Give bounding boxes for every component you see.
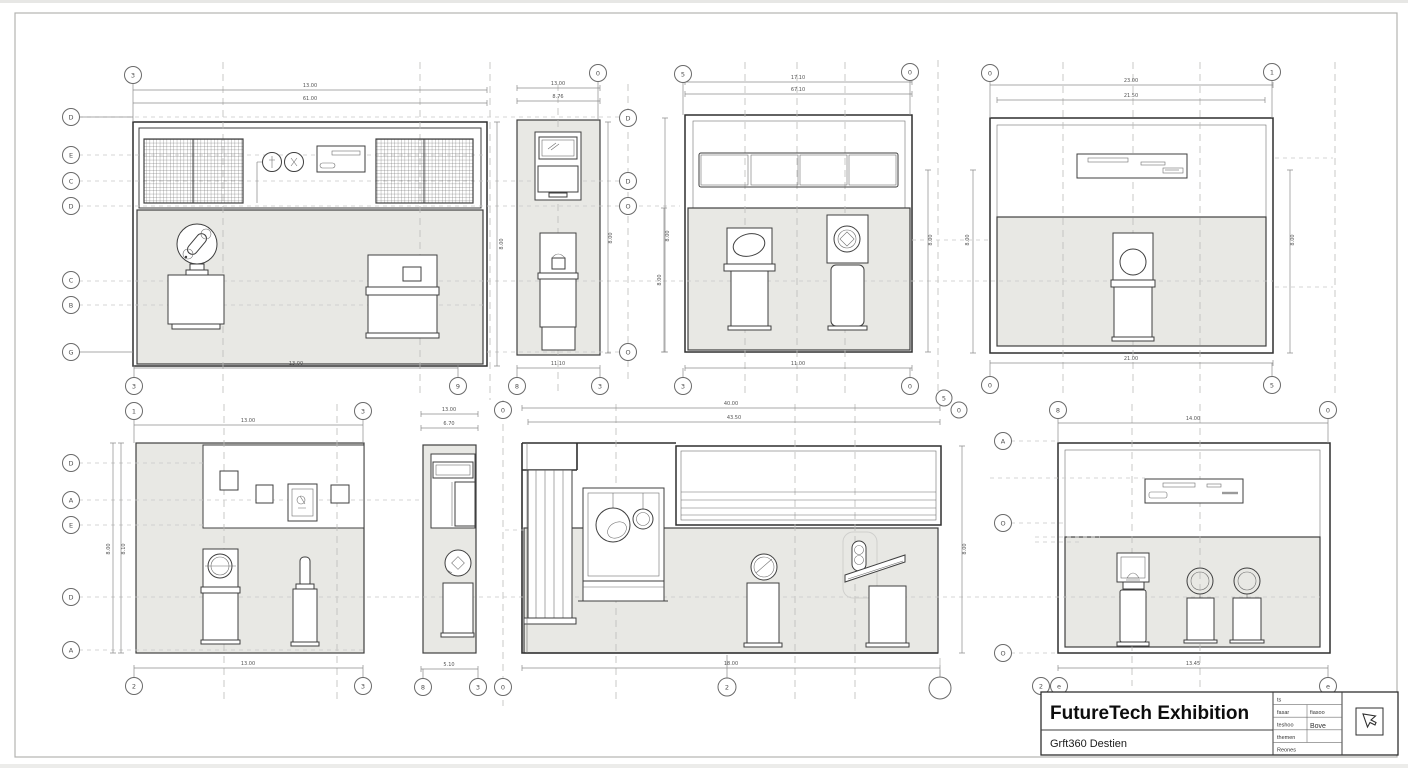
grid-bubble-label: B [69,302,73,310]
grid-bubble-label: 8 [515,383,519,391]
wall-sign-4 [1077,154,1187,178]
grid-bubble-label: e [1057,683,1061,691]
grid-bubble-label: D [68,203,73,211]
display-case-5 [201,549,240,644]
grid-bubble-label: D [625,178,630,186]
dome-exhibit-pedestal [1117,553,1149,646]
grid-bubble-label: 3 [131,72,135,80]
dim-label: 40.00 [724,401,738,407]
grid-bubble-label: 0 [988,382,992,390]
grid-bubble-label: A [69,497,74,505]
dim-label: 13.00 [551,81,565,87]
grid-bubble-label: 0 [1326,407,1330,415]
grid-bubble-label: D [68,460,73,468]
grid-bubble-label: 0 [908,383,912,391]
grid-bubble-label: 3 [598,383,602,391]
title-block: FutureTech Exhibition Grft360 Destien ts… [1041,692,1398,755]
dim-label: 13.00 [241,661,255,667]
dim-label: 67.10 [791,87,805,93]
grid-bubble: 3 [126,378,143,395]
grid-bubble-label: e [1326,683,1330,691]
stamp-box [1356,708,1383,735]
grid-bubble: 1 [126,403,143,420]
grid-bubble: 0 [495,679,512,696]
grid-bubble: 2 [718,678,736,696]
grid-bubble: 3 [592,378,609,395]
wall-sign [317,146,365,172]
dim-label: 8.00 [965,234,971,245]
grid-bubble-label: 3 [681,383,685,391]
grid-bubble: D [63,589,80,606]
grid-bubble-label: 2 [725,684,729,692]
dim-label: 14.00 [1186,416,1200,422]
pillar-column [524,443,576,653]
dim-label: 8.76 [552,94,563,100]
dim-label: 8.00 [962,543,968,554]
grid-bubble-label: O [1000,520,1005,528]
dim-label: 8.00 [665,230,671,241]
porthole-exhibit [445,550,471,576]
grid-bubble: E [63,517,80,534]
grid-bubble-label: 5 [681,71,685,79]
dim-label: 11.00 [791,361,805,367]
grid-bubble: A [995,433,1012,450]
grid-bubble: D [63,455,80,472]
grid-bubble: 0 [1320,402,1337,419]
grid-bubble-label: E [69,522,73,530]
dim-label: 17.10 [791,75,805,81]
display-case-1 [366,255,439,338]
grid-bubble-label: 0 [988,70,992,78]
grid-bubble: 3 [355,678,372,695]
grid-bubble: A [63,492,80,509]
display-case-2 [538,233,578,350]
grid-bubble-empty [929,677,951,699]
grid-bubble: C [63,272,80,289]
grid-bubble: 3 [355,403,372,420]
grid-bubble: 2 [126,678,143,695]
title-table-cell: Reones [1277,748,1296,754]
grid-bubble: E [63,147,80,164]
grid-bubble-label: 1 [132,408,136,416]
grid-bubble-label: 2 [132,683,136,691]
dim-label: 13.00 [442,407,456,413]
grid-bubble: O [995,645,1012,662]
grid-bubble: 0 [951,402,967,418]
grid-bubble-label: O [1000,650,1005,658]
dim-label: 8.00 [928,234,934,245]
dim-label: 13.00 [289,361,303,367]
grid-bubble-label: G [68,349,73,357]
dim-label: 21.00 [1124,356,1138,362]
grid-bubble: B [63,297,80,314]
grid-bubble-label: 0 [501,407,505,415]
dim-label: 43.50 [727,415,741,421]
display-case-4 [1111,233,1155,341]
dim-label: 13.45 [1186,661,1200,667]
dim-label: 5.10 [443,662,454,668]
dim-label: 23.00 [1124,78,1138,84]
sheet-edge-top [0,0,1408,3]
grid-bubble: O [620,198,637,215]
title-table-cell: themen [1277,735,1295,741]
grid-bubble: 3 [470,679,487,696]
grid-bubble: 8 [415,679,432,696]
sheet-edge-bottom [0,764,1408,768]
grid-bubble: 0 [902,378,919,395]
grid-bubble-label: 0 [957,407,961,415]
grid-bubble-label: 0 [908,69,912,77]
grid-bubble-label: E [69,152,73,160]
dim-label: 61.00 [303,96,317,102]
grid-bubble: 9 [450,378,467,395]
wall-sign-8 [1145,479,1243,503]
title-table-cell: ts [1277,698,1282,704]
ring-exhibit-pedestal [827,215,868,330]
project-title: FutureTech Exhibition [1050,703,1249,724]
grid-bubble: D [620,173,637,190]
grid-bubble: 0 [982,65,999,82]
dim-label: 8.00 [657,274,663,285]
display-case-7 [578,488,668,601]
grid-bubble: A [63,642,80,659]
grid-bubble-label: O [625,203,630,211]
elevation-panel-2 [535,132,581,350]
grid-bubble-label: 8 [1056,407,1060,415]
grid-bubble: 3 [125,67,142,84]
grid-bubble-label: 3 [476,684,480,692]
grid-bubble: O [995,515,1012,532]
dim-label: 18.00 [724,661,738,667]
dim-label: 11.10 [551,361,565,367]
grid-bubble-label: A [1001,438,1006,446]
grid-bubble-label: 3 [361,408,365,416]
grid-bubble-label: A [69,647,74,655]
grid-bubble: G [63,344,80,361]
grid-bubble: 0 [982,377,999,394]
grid-bubble: 5 [1264,377,1281,394]
dim-label: 8.00 [499,238,505,249]
grid-bubble: 0 [495,402,512,419]
dim-label: 21.50 [1124,93,1138,99]
grid-bubble: C [63,173,80,190]
grid-bubble: 8 [1050,402,1067,419]
grid-bubble-label: 3 [361,683,365,691]
grid-bubble-label: 5 [942,395,946,403]
grid-bubble: D [63,109,80,126]
grid-bubble-label: D [68,114,73,122]
grid-bubble-label: 2 [1039,683,1043,691]
project-subtitle: Grft360 Destien [1050,738,1127,750]
grid-bubble-label: 8 [421,684,425,692]
grid-bubble-label: D [68,594,73,602]
dim-label: 8.10 [121,543,127,554]
title-table-cell: fasar [1277,710,1289,716]
title-table-cell: teshoo [1277,723,1294,729]
egg-exhibit-pedestal [724,228,775,330]
grid-bubble-label: 9 [456,383,460,391]
grid-bubble-label: 1 [1270,69,1274,77]
dim-label: 8.00 [1290,234,1296,245]
grid-bubble: 5 [675,66,692,83]
grid-bubble: 8 [509,378,526,395]
grid-bubble-label: C [69,178,74,186]
grid-bubble: O [620,344,637,361]
title-table-cell: Bove [1310,723,1326,730]
grid-bubble: 5 [936,390,952,406]
title-table-cell: fiasoo [1310,710,1325,716]
grid-bubble: 3 [675,378,692,395]
grid-bubble: D [620,110,637,127]
drawing-sheet: 13.00 61.00 13.00 8.00 13.00 8.76 11.10 … [0,0,1408,768]
grid-bubble-label: 5 [1270,382,1274,390]
grid-bubble: D [63,198,80,215]
dim-label: 8.00 [106,543,112,554]
grid-bubble-label: C [69,277,74,285]
dim-label: 13.00 [303,83,317,89]
grid-bubble-label: 3 [132,383,136,391]
grid-bubble-label: 0 [596,70,600,78]
grid-bubble-label: 0 [501,684,505,692]
dim-label: 6.70 [443,421,454,427]
grid-bubble-label: D [625,115,630,123]
grid-bubble: 0 [902,64,919,81]
grid-bubble-label: O [625,349,630,357]
grid-bubble: 1 [1264,64,1281,81]
grid-bubble: 0 [590,65,607,82]
dim-label: 8.00 [608,232,614,243]
dim-label: 13.00 [241,418,255,424]
